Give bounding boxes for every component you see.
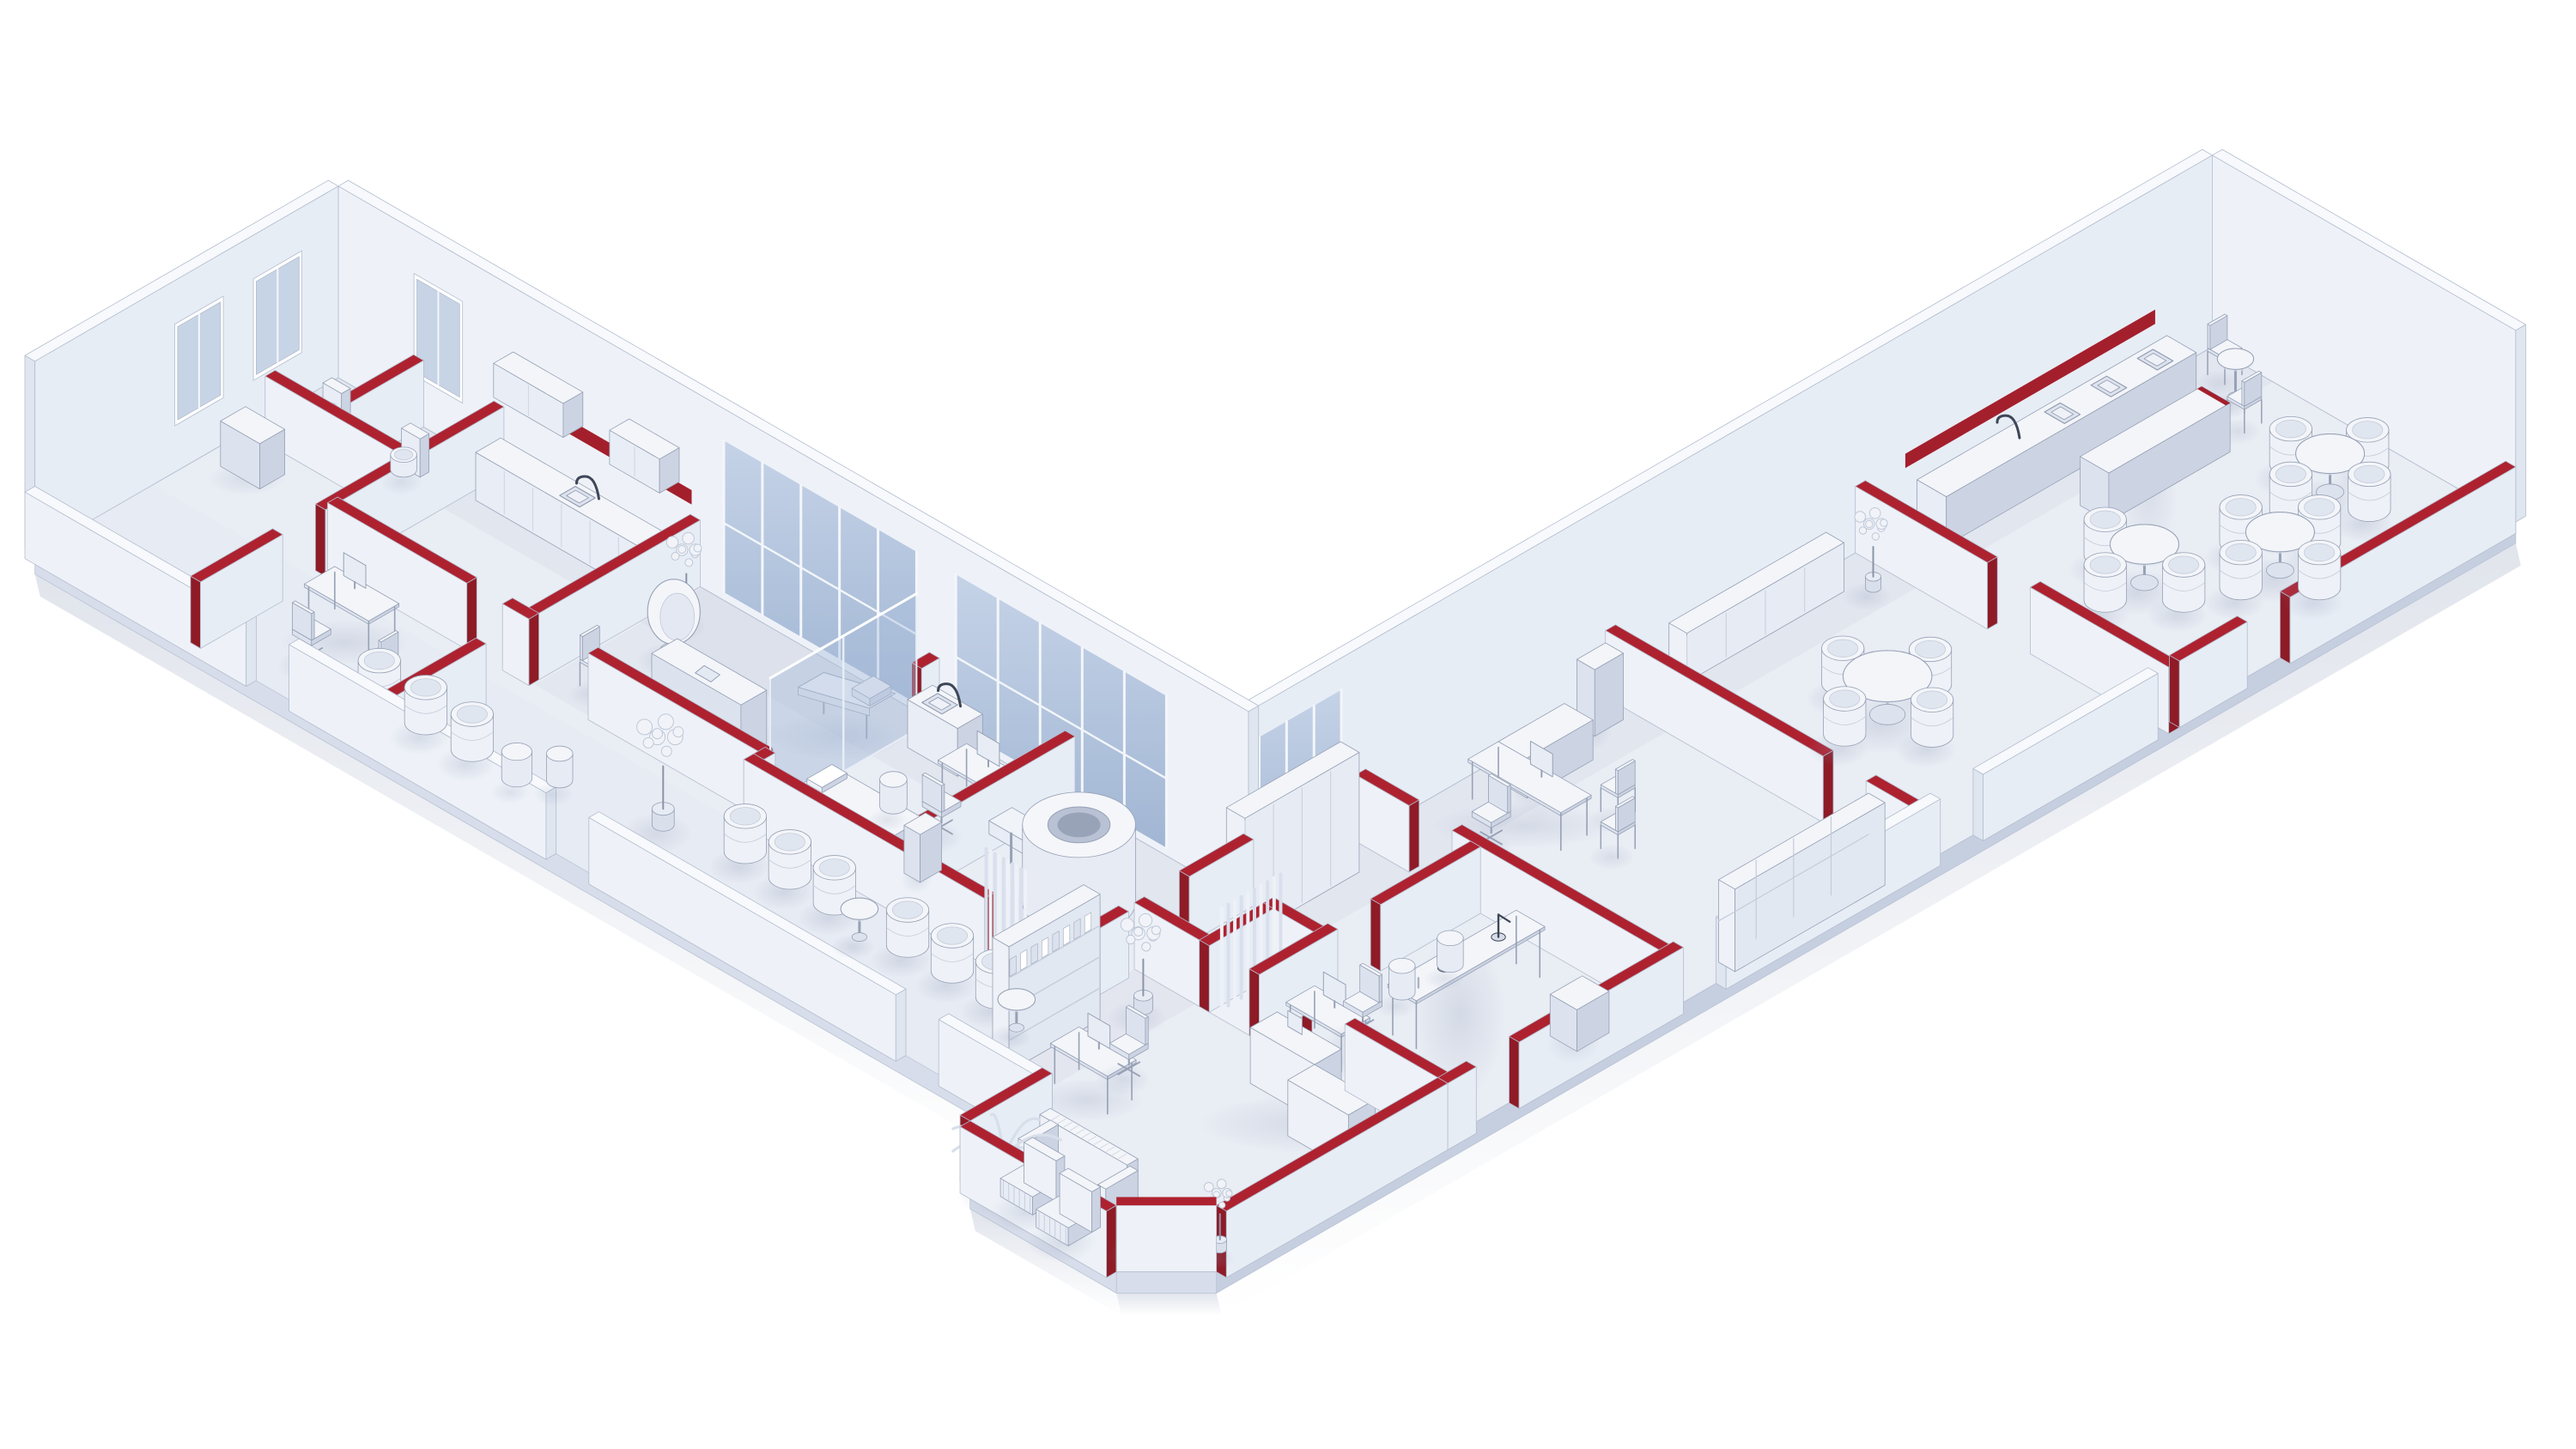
face-east xyxy=(312,612,314,640)
tub-seat xyxy=(2090,511,2120,528)
tub-seat xyxy=(2305,499,2335,516)
stool xyxy=(1437,931,1464,946)
face-east xyxy=(1092,1187,1101,1233)
plant-foliage xyxy=(1869,507,1880,518)
face-south xyxy=(1510,1036,1520,1108)
ground-shadow xyxy=(1116,1293,1221,1315)
face-south xyxy=(1200,940,1210,1012)
plant-foliage xyxy=(666,537,678,549)
tub-seat xyxy=(775,834,805,851)
binder xyxy=(1020,949,1027,970)
binder xyxy=(1074,919,1080,939)
stool xyxy=(501,743,532,760)
face-east xyxy=(942,784,945,812)
binder xyxy=(1084,912,1091,933)
face-south xyxy=(580,635,582,661)
plant-foliage xyxy=(683,532,695,544)
plant-foliage xyxy=(1127,935,1135,943)
tub-seat xyxy=(937,927,967,944)
tub-seat xyxy=(2275,420,2306,437)
tub-seat xyxy=(457,706,487,723)
round-table-top xyxy=(2217,349,2253,369)
plant-foliage xyxy=(1139,913,1151,926)
egg-seat xyxy=(660,593,695,640)
face-east xyxy=(246,614,257,686)
tub-seat xyxy=(1828,640,1858,657)
building-layer xyxy=(25,149,2525,1277)
tub-seat xyxy=(1830,690,1860,707)
tub-seat xyxy=(730,808,760,825)
face-east xyxy=(1988,557,1998,629)
tub-seat xyxy=(1915,640,1945,658)
plant-foliage xyxy=(1219,1202,1225,1208)
face-south xyxy=(2208,324,2210,350)
face-east xyxy=(896,989,906,1061)
tub-seat xyxy=(410,679,440,696)
table-base xyxy=(1009,1023,1024,1032)
plant-foliage xyxy=(1866,520,1873,527)
face-east xyxy=(1409,800,1419,872)
plant-foliage xyxy=(653,729,663,739)
stool xyxy=(546,746,573,761)
scanner-bore-inner xyxy=(1058,812,1101,837)
tub-seat xyxy=(1917,691,1947,708)
plant-foliage xyxy=(1213,1191,1219,1197)
plant-foliage xyxy=(637,719,653,735)
face-south xyxy=(1615,769,1618,795)
shadow xyxy=(1589,844,1634,870)
tub-seat xyxy=(2090,556,2120,573)
face-east xyxy=(1107,1205,1117,1277)
table-base xyxy=(2130,575,2158,591)
face-south xyxy=(191,576,201,648)
plant-foliage xyxy=(1872,533,1879,540)
tub-seat xyxy=(819,859,849,876)
face-east xyxy=(420,433,428,477)
isometric-floorplan-scene xyxy=(0,0,2576,1449)
plant-foliage xyxy=(1151,926,1160,935)
face-south xyxy=(2170,655,2180,727)
face-east xyxy=(1508,785,1510,813)
binder xyxy=(1010,955,1017,976)
face-east xyxy=(529,613,539,685)
plant-foliage xyxy=(673,727,683,737)
tub-seat xyxy=(2354,465,2385,482)
binder xyxy=(1031,943,1038,964)
toilet-seat xyxy=(394,450,412,460)
plant-foliage xyxy=(661,746,671,756)
wall-diag-cap xyxy=(1116,1197,1216,1206)
face-south xyxy=(904,825,920,882)
stool xyxy=(1389,958,1416,973)
plant-foliage xyxy=(1134,927,1143,936)
slab-side xyxy=(1116,1272,1216,1294)
plant-foliage xyxy=(1121,919,1133,931)
plant-foliage xyxy=(1204,1182,1213,1191)
plant-foliage xyxy=(685,559,693,567)
round-table-top xyxy=(841,898,878,919)
stool xyxy=(880,772,908,787)
tub-seat xyxy=(2226,543,2256,561)
tub-seat xyxy=(364,652,394,669)
face-south xyxy=(1973,768,1984,840)
face-east xyxy=(1379,974,1382,1003)
face-east xyxy=(1145,1016,1148,1045)
face-south xyxy=(315,504,325,576)
plant-foliage xyxy=(678,545,686,553)
tub-seat xyxy=(2353,421,2383,439)
scene-item xyxy=(502,598,538,686)
binder xyxy=(1042,937,1048,958)
face-south xyxy=(1370,899,1381,971)
face-south xyxy=(1719,880,1735,972)
binder xyxy=(1063,925,1070,945)
binder xyxy=(1053,931,1060,952)
plant-foliage xyxy=(1142,943,1151,951)
tub-seat xyxy=(2169,556,2199,573)
table-base xyxy=(2266,562,2293,578)
scene-item xyxy=(1116,1197,1216,1272)
face-south xyxy=(1615,806,1618,832)
plant-foliage xyxy=(1859,527,1866,534)
plant-foliage xyxy=(1217,1179,1226,1189)
tub-seat xyxy=(2305,543,2335,561)
table-base xyxy=(1869,704,1905,724)
face-south xyxy=(2242,381,2245,407)
plant-foliage xyxy=(1880,519,1887,526)
plant-foliage xyxy=(658,714,673,730)
tub-seat xyxy=(2275,465,2306,482)
shadow xyxy=(1095,1064,1151,1095)
tub-seat xyxy=(2226,499,2256,516)
plant-foliage xyxy=(1226,1191,1232,1197)
face-east xyxy=(2516,324,2526,522)
table-base xyxy=(852,933,866,942)
plant-foliage xyxy=(1855,512,1866,523)
round-table-top xyxy=(998,989,1035,1010)
isometric-floorplan-svg xyxy=(0,0,2576,1449)
plant-foliage xyxy=(694,544,702,552)
wall-diag-face xyxy=(1116,1205,1216,1272)
tub-seat xyxy=(892,901,922,919)
plant-foliage xyxy=(671,553,679,561)
plant-foliage xyxy=(643,737,653,748)
